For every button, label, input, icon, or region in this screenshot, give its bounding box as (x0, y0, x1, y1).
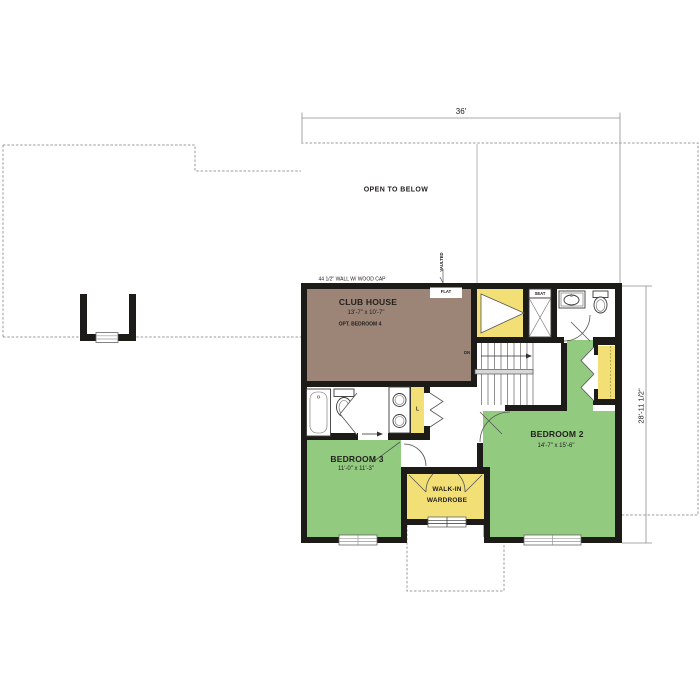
bathtub (307, 389, 331, 436)
bath-entry-arrow (362, 432, 383, 437)
bedroom-3-size: 11'-0" x 11'-3" (338, 466, 374, 472)
chimney-window (96, 333, 118, 343)
linen-closet-bifold (430, 393, 443, 427)
sink-vanity-2 (559, 291, 585, 308)
wardrobe-name-line1: WALK-IN (432, 487, 461, 494)
club-house-note: OPT. BEDROOM 4 (339, 323, 382, 328)
stair-direction-arrow (526, 354, 532, 359)
bedroom-2-window (524, 535, 581, 545)
bedroom-3-window (339, 535, 377, 545)
shower (529, 298, 551, 337)
club-house-name: CLUB HOUSE (339, 298, 397, 307)
vaulted-label: VAULTED (440, 252, 444, 271)
double-sink-vanity (389, 387, 410, 433)
roof-outline-left (3, 145, 301, 337)
club-house-size: 13'-7" x 10'-7" (348, 310, 385, 316)
floor-plan-drawing (0, 0, 700, 700)
wardrobe-name-line2: WARDROBE (427, 498, 467, 505)
wall-note-label: 44 1/2" WALL W/ WOOD CAP (319, 278, 386, 283)
toilet-2 (593, 291, 608, 313)
bedroom-2-name: BEDROOM 2 (530, 430, 583, 439)
seat-label: SEAT (535, 291, 546, 295)
bedroom-2-size: 14'-7" x 15'-6" (538, 443, 575, 449)
bathroom-2-fixtures (529, 289, 608, 341)
stair-down-label: DN (464, 350, 470, 354)
bedroom-3-name: BEDROOM 3 (330, 455, 383, 464)
bathroom-main-fixtures (307, 387, 412, 437)
flat-label: FLAT (441, 290, 451, 294)
floor-plan: 36' 28'-11 1/2" OPEN TO BELOW 44 1/2" WA… (0, 0, 700, 700)
dimension-right-label: 28'-11 1/2" (637, 388, 645, 423)
wardrobe-window (428, 517, 466, 527)
stair-rail (475, 370, 533, 375)
open-to-below-label: OPEN TO BELOW (364, 187, 429, 194)
bath-2-door (564, 315, 590, 341)
staircase (475, 343, 533, 405)
linen-divider (410, 387, 412, 433)
dimension-top-label: 36' (456, 108, 466, 116)
linen-closet-label: L (416, 408, 419, 413)
